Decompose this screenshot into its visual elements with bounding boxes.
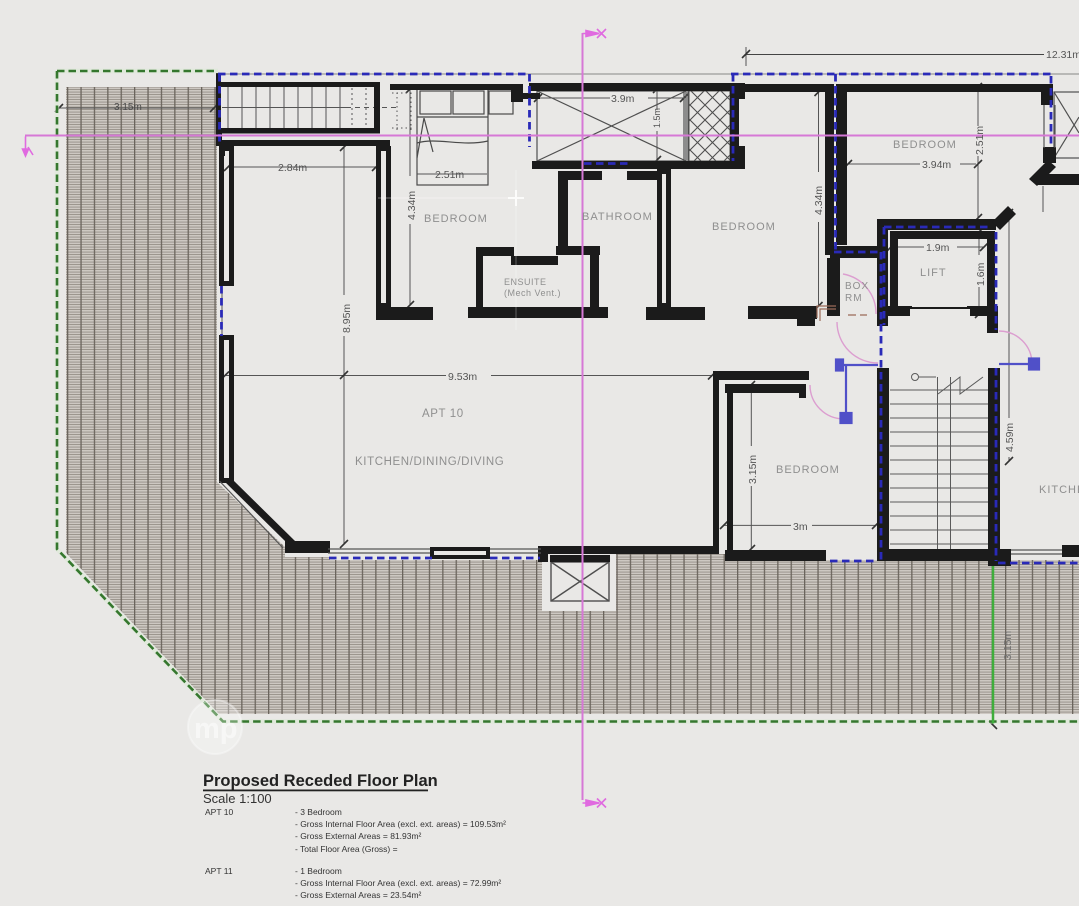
svg-text:- 3 Bedroom: - 3 Bedroom: [295, 807, 342, 817]
svg-text:BEDROOM: BEDROOM: [424, 213, 488, 225]
svg-text:Proposed Receded Floor Plan: Proposed Receded Floor Plan: [203, 772, 438, 790]
svg-text:1.6m: 1.6m: [975, 262, 987, 286]
svg-text:- Gross Internal Floor Area (e: - Gross Internal Floor Area (excl. ext. …: [295, 819, 506, 829]
svg-text:mp: mp: [194, 713, 238, 745]
svg-text:4.34m: 4.34m: [813, 186, 825, 215]
svg-text:1.5m: 1.5m: [652, 108, 662, 128]
svg-text:3m: 3m: [793, 521, 808, 533]
svg-text:2.84m: 2.84m: [278, 162, 307, 174]
svg-text:BEDROOM: BEDROOM: [712, 221, 776, 233]
svg-text:8.95m: 8.95m: [341, 304, 353, 333]
svg-text:3.15m: 3.15m: [747, 455, 759, 484]
svg-text:- Total Floor Area (Gross) =: - Total Floor Area (Gross) =: [295, 844, 398, 854]
svg-text:RM: RM: [845, 293, 863, 304]
svg-text:BEDROOM: BEDROOM: [893, 139, 957, 151]
svg-text:4.59m: 4.59m: [1004, 423, 1016, 452]
svg-text:Scale 1:100: Scale 1:100: [203, 791, 272, 806]
svg-text:BEDROOM: BEDROOM: [776, 464, 840, 476]
svg-text:ENSUITE: ENSUITE: [504, 277, 547, 287]
svg-text:- Gross External Areas = 23.54: - Gross External Areas = 23.54m²: [295, 890, 422, 900]
svg-text:- 1 Bedroom: - 1 Bedroom: [295, 866, 342, 876]
svg-text:9.53m: 9.53m: [448, 371, 477, 383]
svg-text:1.9m: 1.9m: [926, 242, 950, 254]
svg-text:LIFT: LIFT: [920, 267, 947, 279]
svg-text:(Mech Vent.): (Mech Vent.): [504, 288, 561, 298]
svg-text:APT 10: APT 10: [422, 408, 464, 420]
svg-text:APT 10: APT 10: [205, 807, 233, 817]
svg-text:2.51m: 2.51m: [974, 126, 986, 155]
svg-text:APT 11: APT 11: [205, 866, 233, 876]
svg-text:KITCHEN: KITCHEN: [1039, 484, 1079, 496]
svg-text:- Gross External Areas = 81.93: - Gross External Areas = 81.93m²: [295, 831, 422, 841]
svg-text:3.15m: 3.15m: [114, 102, 142, 113]
svg-text:BATHROOM: BATHROOM: [582, 211, 653, 223]
svg-text:3.94m: 3.94m: [922, 159, 951, 171]
svg-text:3.15m: 3.15m: [1002, 631, 1014, 660]
svg-text:12.31m: 12.31m: [1046, 49, 1079, 61]
svg-text:- Gross Internal Floor Area (e: - Gross Internal Floor Area (excl. ext. …: [295, 878, 501, 888]
svg-text:4.34m: 4.34m: [406, 191, 418, 220]
svg-text:KITCHEN/DINING/DIVING: KITCHEN/DINING/DIVING: [355, 456, 504, 468]
svg-text:2.51m: 2.51m: [435, 169, 464, 181]
svg-text:BOX: BOX: [845, 281, 869, 292]
svg-text:3.9m: 3.9m: [611, 93, 635, 105]
